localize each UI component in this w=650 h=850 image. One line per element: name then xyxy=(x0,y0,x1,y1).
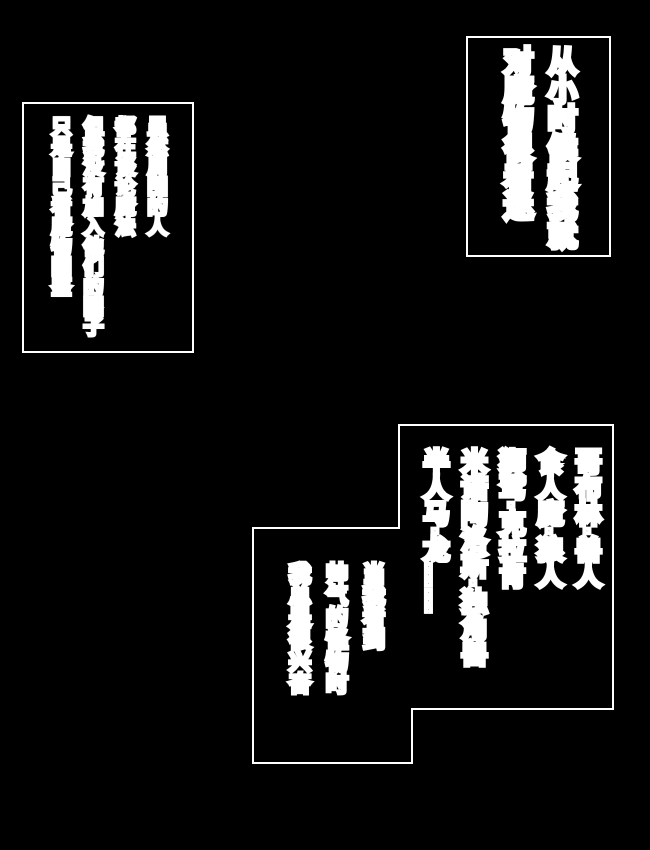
monster-list-line: 哥布林·兽人 xyxy=(567,448,605,666)
monster-list-line: 米诺陶洛斯·独角兽 xyxy=(453,448,491,666)
excitement-text: 当我看到 帅气的怪物时 我总是很兴奋 xyxy=(279,562,390,694)
surroundings-line: 都在谈论魔法 xyxy=(108,116,140,351)
monster-list-line: 半人马·龙…… xyxy=(415,448,453,666)
childhood-line: 对魔物很着迷 xyxy=(495,46,539,255)
speech-box-surroundings: 虽然周围的人 都在谈论魔法 但我没有加入他们的圈子 只是自己看魔物图鉴 xyxy=(22,102,194,353)
surroundings-line: 虽然周围的人 xyxy=(140,116,172,351)
excitement-line: 我总是很兴奋 xyxy=(279,562,316,694)
monster-list-line: 狮鹫·克拉肯 xyxy=(491,448,529,666)
speech-box-childhood: 从小时候起我就 对魔物很着迷 xyxy=(466,36,611,257)
monster-list-text: 哥布林·兽人 食人魔·狼人 狮鹫·克拉肯 米诺陶洛斯·独角兽 半人马·龙…… xyxy=(415,448,605,666)
surroundings-line: 但我没有加入他们的圈子 xyxy=(76,116,108,351)
excitement-line: 帅气的怪物时 xyxy=(316,562,353,694)
monster-list-line: 食人魔·狼人 xyxy=(529,448,567,666)
excitement-line: 当我看到 xyxy=(353,562,390,694)
surroundings-text: 虽然周围的人 都在谈论魔法 但我没有加入他们的圈子 只是自己看魔物图鉴 xyxy=(44,116,172,351)
manga-page: 从小时候起我就 对魔物很着迷 虽然周围的人 都在谈论魔法 但我没有加入他们的圈子… xyxy=(0,0,650,850)
surroundings-line: 只是自己看魔物图鉴 xyxy=(44,116,76,351)
childhood-line: 从小时候起我就 xyxy=(539,46,583,255)
childhood-text: 从小时候起我就 对魔物很着迷 xyxy=(495,46,583,255)
